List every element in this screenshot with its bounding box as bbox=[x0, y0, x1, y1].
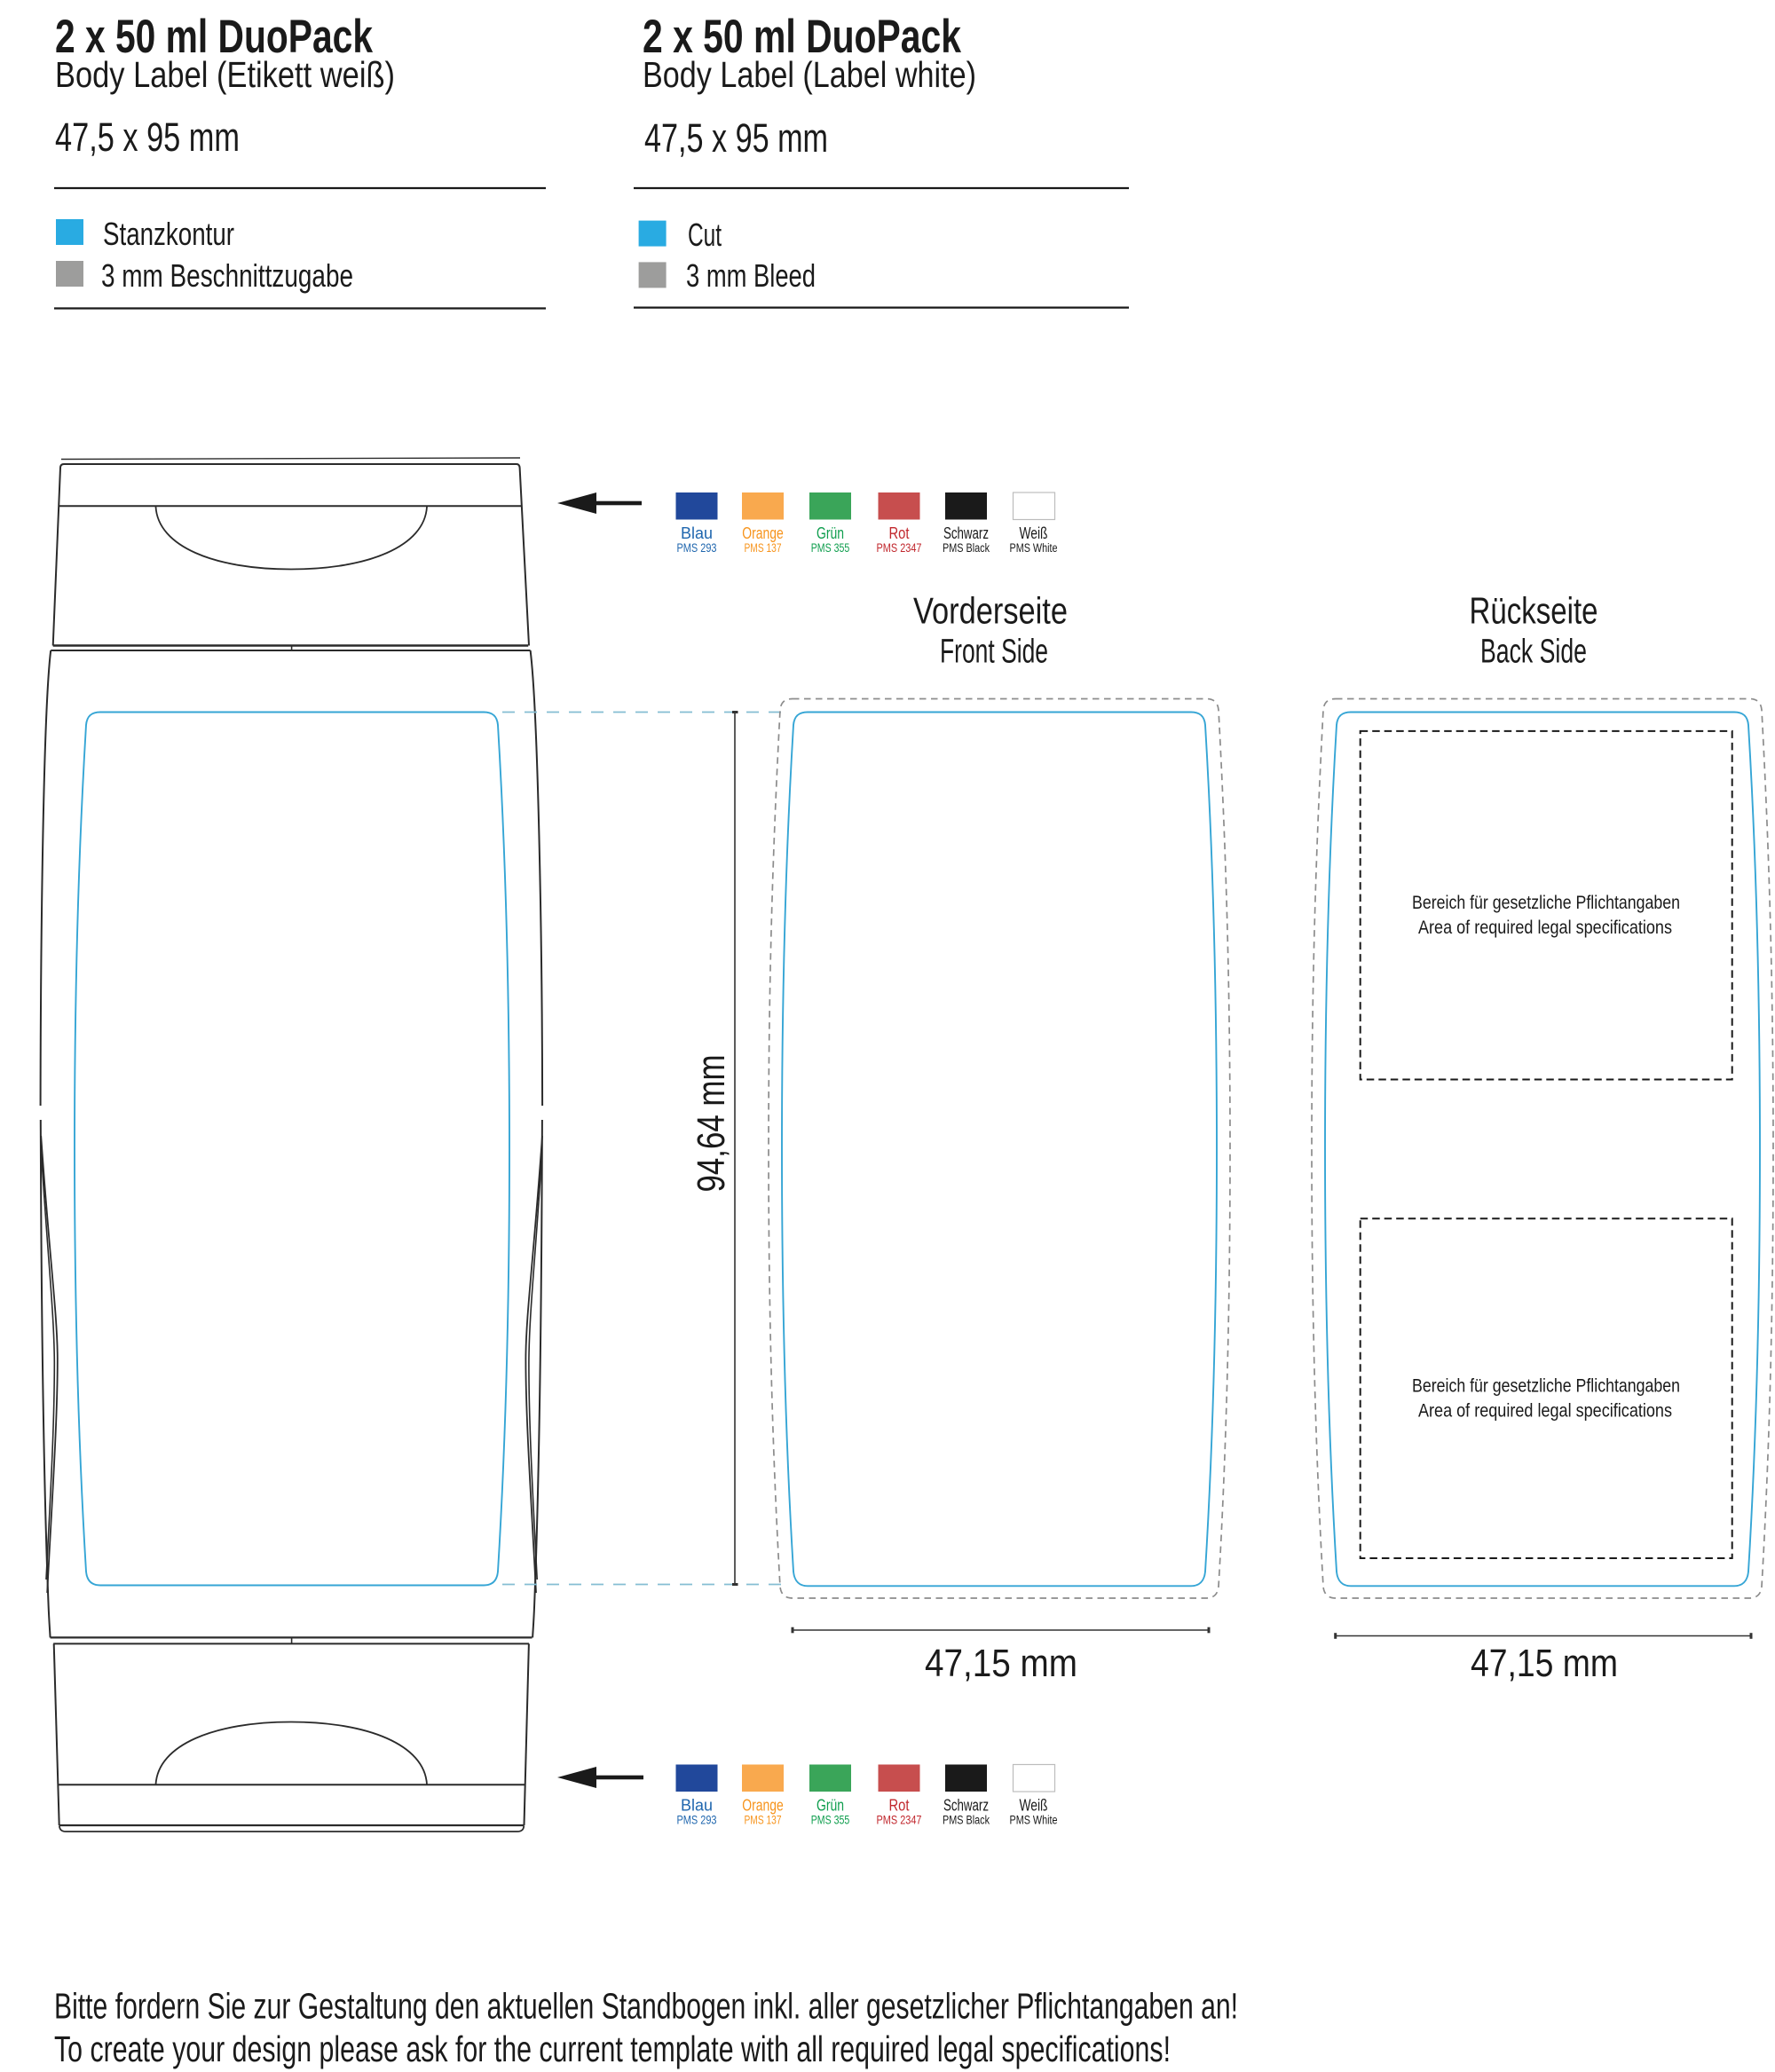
svg-text:47,15 mm: 47,15 mm bbox=[925, 1643, 1077, 1685]
svg-text:Cut: Cut bbox=[688, 217, 722, 253]
svg-text:Rückseite: Rückseite bbox=[1470, 590, 1598, 632]
svg-text:3 mm Bleed: 3 mm Bleed bbox=[686, 257, 816, 294]
svg-text:Area of required legal specifi: Area of required legal specifications bbox=[1418, 1401, 1672, 1422]
svg-text:PMS 355: PMS 355 bbox=[811, 541, 850, 555]
svg-text:Rot: Rot bbox=[889, 524, 910, 542]
svg-text:Bitte fordern Sie zur Gestaltu: Bitte fordern Sie zur Gestaltung den akt… bbox=[54, 1986, 1238, 2027]
svg-text:Area of required legal specifi: Area of required legal specifications bbox=[1418, 918, 1672, 938]
svg-text:Blau: Blau bbox=[681, 1796, 713, 1815]
svg-text:PMS 2347: PMS 2347 bbox=[877, 1814, 922, 1827]
svg-text:PMS 355: PMS 355 bbox=[811, 1814, 850, 1827]
svg-text:PMS 137: PMS 137 bbox=[745, 541, 782, 555]
svg-text:Vorderseite: Vorderseite bbox=[913, 590, 1068, 632]
svg-text:Front Side: Front Side bbox=[940, 634, 1048, 671]
svg-text:Body Label (Etikett weiß): Body Label (Etikett weiß) bbox=[55, 54, 395, 95]
svg-text:PMS 137: PMS 137 bbox=[745, 1814, 782, 1827]
svg-text:PMS 2347: PMS 2347 bbox=[877, 541, 922, 555]
svg-text:Body Label (Label white): Body Label (Label white) bbox=[643, 54, 976, 95]
svg-text:47,5 x 95 mm: 47,5 x 95 mm bbox=[55, 114, 240, 160]
svg-text:3 mm Beschnittzugabe: 3 mm Beschnittzugabe bbox=[101, 257, 353, 294]
svg-text:PMS White: PMS White bbox=[1010, 1814, 1058, 1827]
svg-text:Bereich für gesetzliche Pflich: Bereich für gesetzliche Pflichtangaben bbox=[1412, 893, 1680, 913]
svg-text:PMS 293: PMS 293 bbox=[677, 1814, 717, 1827]
svg-text:Orange: Orange bbox=[742, 1796, 784, 1815]
svg-text:PMS White: PMS White bbox=[1010, 541, 1058, 555]
svg-text:Schwarz: Schwarz bbox=[943, 524, 989, 542]
svg-text:Grün: Grün bbox=[816, 524, 844, 542]
svg-text:94,64 mm: 94,64 mm bbox=[690, 1055, 733, 1193]
svg-text:Stanzkontur: Stanzkontur bbox=[103, 216, 234, 252]
svg-text:Rot: Rot bbox=[889, 1796, 910, 1815]
svg-text:Weiß: Weiß bbox=[1020, 524, 1048, 542]
svg-text:Schwarz: Schwarz bbox=[943, 1796, 989, 1815]
svg-text:To create your design please a: To create your design please ask for the… bbox=[54, 2029, 1171, 2069]
svg-text:Back Side: Back Side bbox=[1480, 634, 1587, 671]
svg-text:Bereich für gesetzliche Pflich: Bereich für gesetzliche Pflichtangaben bbox=[1412, 1376, 1680, 1397]
svg-text:PMS 293: PMS 293 bbox=[677, 541, 717, 555]
svg-text:Orange: Orange bbox=[742, 524, 784, 542]
svg-text:Grün: Grün bbox=[816, 1796, 844, 1815]
svg-text:PMS Black: PMS Black bbox=[943, 1814, 990, 1827]
svg-text:Weiß: Weiß bbox=[1020, 1796, 1048, 1815]
svg-text:47,15 mm: 47,15 mm bbox=[1471, 1643, 1618, 1685]
svg-text:47,5 x 95 mm: 47,5 x 95 mm bbox=[644, 115, 828, 161]
svg-text:PMS Black: PMS Black bbox=[943, 541, 990, 555]
svg-text:Blau: Blau bbox=[681, 524, 713, 542]
